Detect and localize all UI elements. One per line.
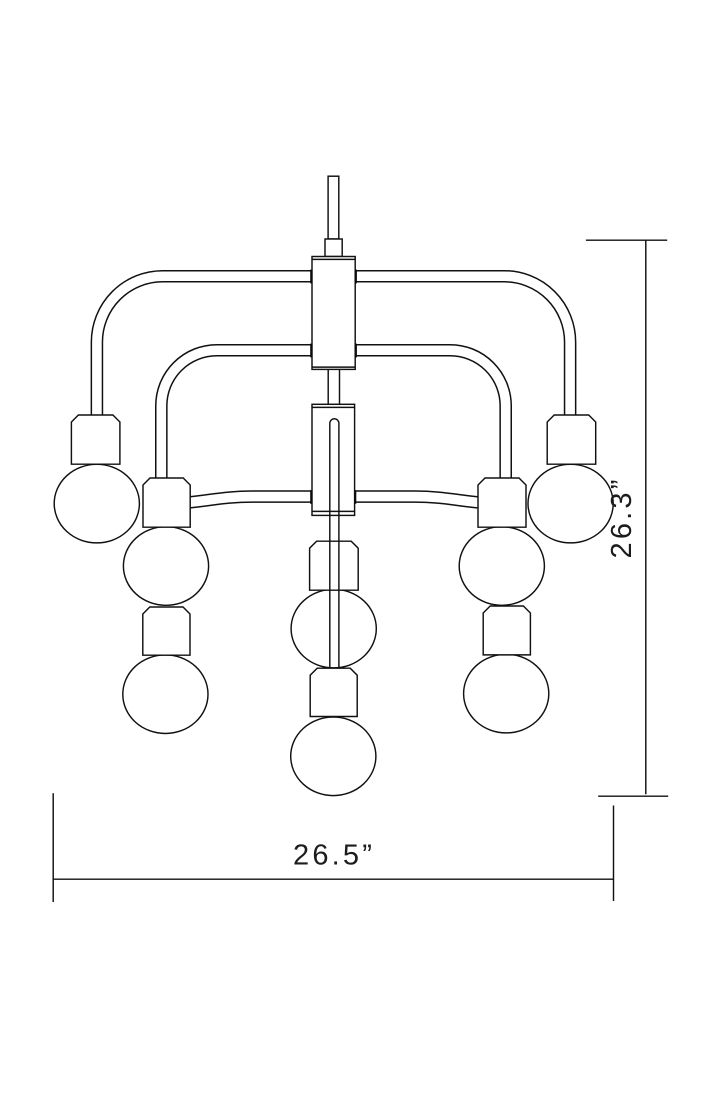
svg-text:26.3”: 26.3”: [606, 476, 638, 558]
svg-text:26.5”: 26.5”: [293, 840, 375, 872]
